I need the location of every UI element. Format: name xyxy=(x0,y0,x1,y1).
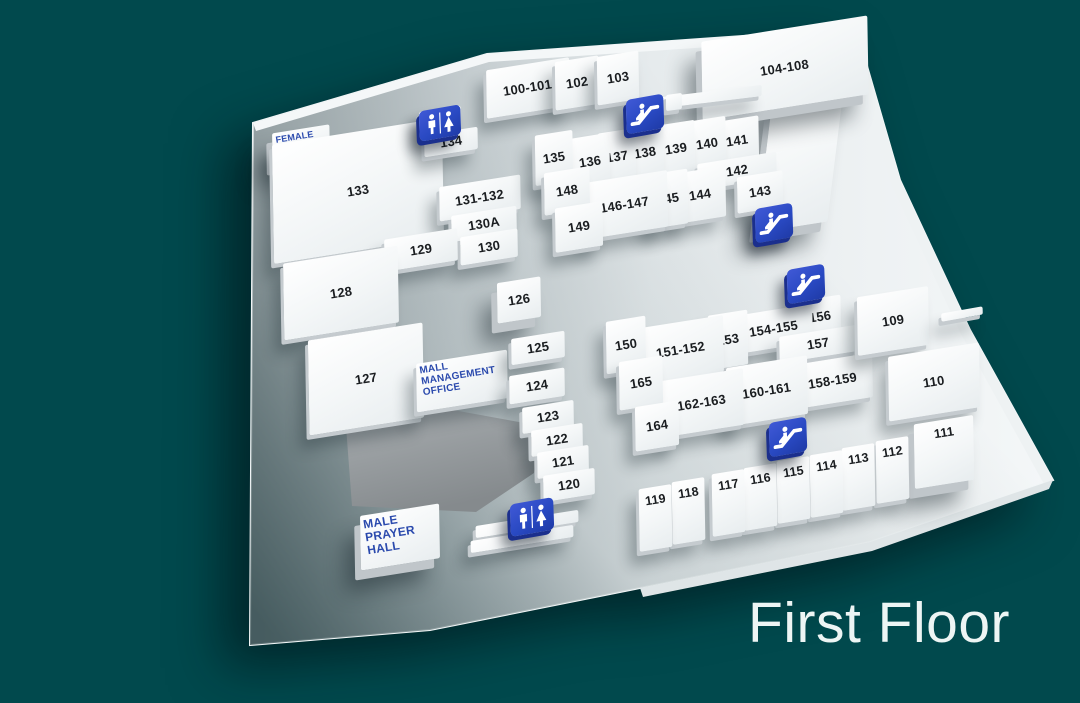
mall-floor-map: 100-101102103104-108FEMALE PRAYER HALL13… xyxy=(0,0,1080,703)
escalator-icon xyxy=(626,94,665,135)
restroom-icon xyxy=(419,104,461,142)
escalator-icon xyxy=(787,264,826,305)
restroom-icon xyxy=(510,497,554,537)
page-title: First Floor xyxy=(748,590,1010,656)
escalator-icon xyxy=(769,417,808,458)
escalator-icon xyxy=(755,203,794,244)
